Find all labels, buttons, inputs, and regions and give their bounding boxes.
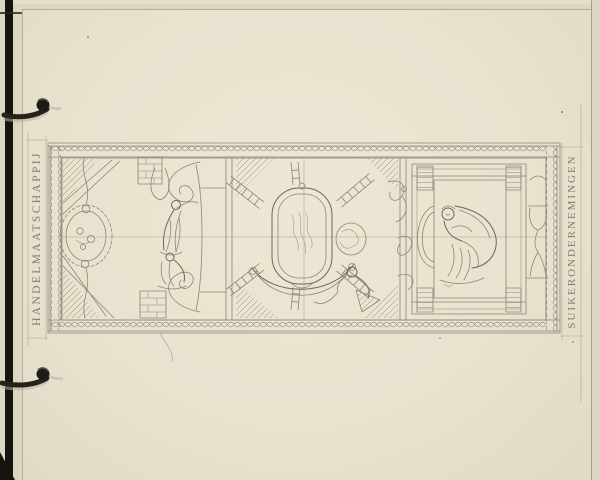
left-panel-sketch bbox=[60, 157, 226, 318]
binder-ring-bottom bbox=[2, 368, 63, 387]
left-margin-title: HANDELMAATSCHAPPIJ bbox=[29, 140, 46, 337]
right-panel-sketch bbox=[412, 164, 548, 314]
binder-ring-top bbox=[4, 99, 61, 119]
photo-of-album-page: HANDELMAATSCHAPPIJ SUIKERONDERNEMINGEN bbox=[0, 0, 600, 480]
stray-pencil-marks bbox=[87, 36, 574, 361]
right-margin-title: SUIKERONDERNEMINGEN bbox=[563, 147, 581, 336]
center-panel-sketch bbox=[226, 158, 413, 318]
pencil-sketch-svg bbox=[0, 0, 600, 480]
